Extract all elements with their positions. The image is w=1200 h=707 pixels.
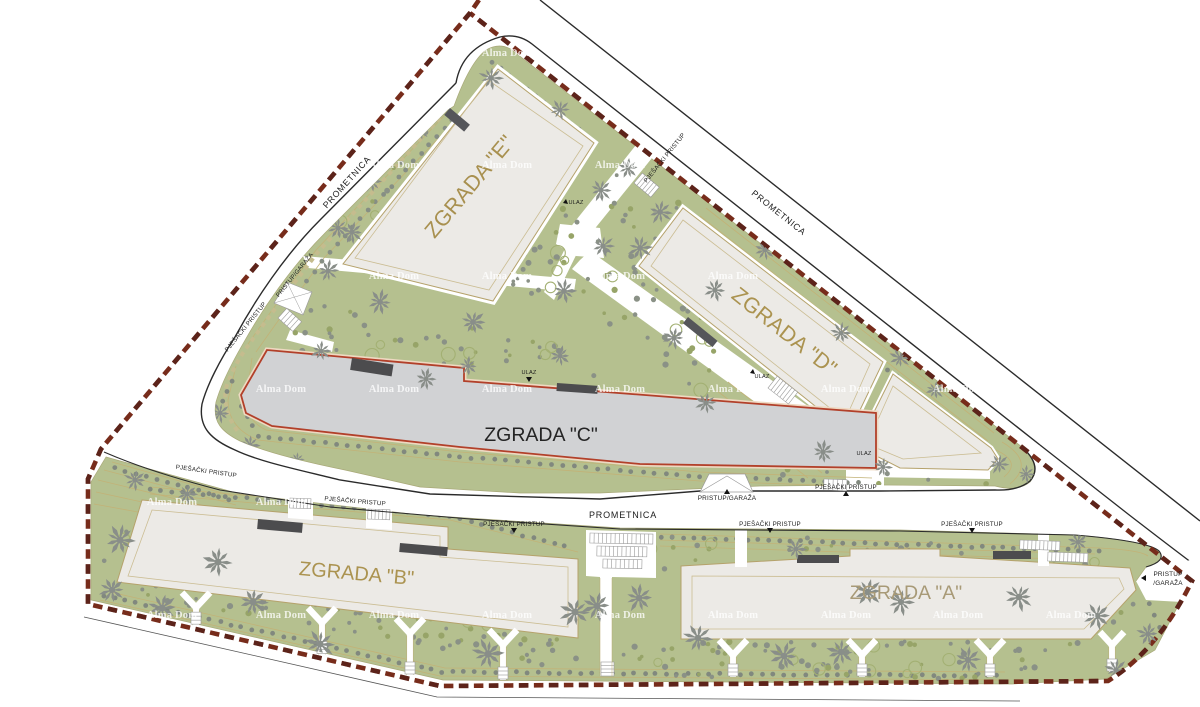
svg-text:Alma Dom: Alma Dom: [482, 48, 532, 59]
svg-text:PJEŠAČKI PRISTUP: PJEŠAČKI PRISTUP: [483, 521, 545, 528]
svg-text:ZGRADA "C": ZGRADA "C": [484, 424, 598, 446]
svg-text:Alma Dom: Alma Dom: [256, 497, 306, 508]
svg-text:Alma Dom: Alma Dom: [482, 160, 532, 171]
svg-text:PJEŠAČKI PRISTUP: PJEŠAČKI PRISTUP: [941, 521, 1003, 528]
svg-text:ULAZ: ULAZ: [856, 451, 871, 457]
svg-text:Alma Dom: Alma Dom: [821, 610, 871, 621]
svg-text:Alma Dom: Alma Dom: [1046, 610, 1096, 621]
svg-text:PJEŠAČKI PRISTUP: PJEŠAČKI PRISTUP: [815, 484, 877, 491]
svg-text:Alma Dom: Alma Dom: [256, 610, 306, 621]
svg-text:Alma Dom: Alma Dom: [147, 497, 197, 508]
svg-text:Alma Dom: Alma Dom: [369, 271, 419, 282]
svg-text:ZGRADA "A": ZGRADA "A": [850, 582, 963, 604]
svg-text:PROMETNICA: PROMETNICA: [589, 510, 657, 520]
svg-text:ULAZ: ULAZ: [754, 374, 769, 380]
svg-text:ULAZ: ULAZ: [521, 370, 536, 376]
svg-text:Alma Dom: Alma Dom: [369, 160, 419, 171]
svg-text:Alma Dom: Alma Dom: [147, 610, 197, 621]
svg-text:PRISTUP/GARAŽA: PRISTUP/GARAŽA: [698, 493, 757, 502]
svg-text:PJEŠAČKI PRISTUP: PJEŠAČKI PRISTUP: [739, 521, 801, 528]
svg-text:/GARAŽA: /GARAŽA: [1153, 578, 1183, 587]
svg-text:Alma Dom: Alma Dom: [256, 384, 306, 395]
svg-text:Alma Dom: Alma Dom: [933, 384, 983, 395]
svg-text:Alma Dom: Alma Dom: [482, 610, 532, 621]
svg-text:Alma Dom: Alma Dom: [708, 271, 758, 282]
svg-text:Alma Dom: Alma Dom: [821, 384, 871, 395]
svg-text:Alma Dom: Alma Dom: [482, 271, 532, 282]
svg-text:Alma Dom: Alma Dom: [595, 271, 645, 282]
svg-text:Alma Dom: Alma Dom: [482, 384, 532, 395]
svg-text:Alma Dom: Alma Dom: [369, 610, 419, 621]
svg-text:Alma Dom: Alma Dom: [708, 384, 758, 395]
svg-text:Alma Dom: Alma Dom: [595, 384, 645, 395]
svg-text:Alma Dom: Alma Dom: [595, 610, 645, 621]
svg-text:ULAZ: ULAZ: [568, 200, 583, 206]
svg-text:PRISTUP: PRISTUP: [1153, 571, 1182, 578]
svg-text:Alma Dom: Alma Dom: [595, 160, 645, 171]
svg-text:Alma Dom: Alma Dom: [933, 610, 983, 621]
svg-text:Alma Dom: Alma Dom: [708, 610, 758, 621]
svg-text:Alma Dom: Alma Dom: [369, 384, 419, 395]
